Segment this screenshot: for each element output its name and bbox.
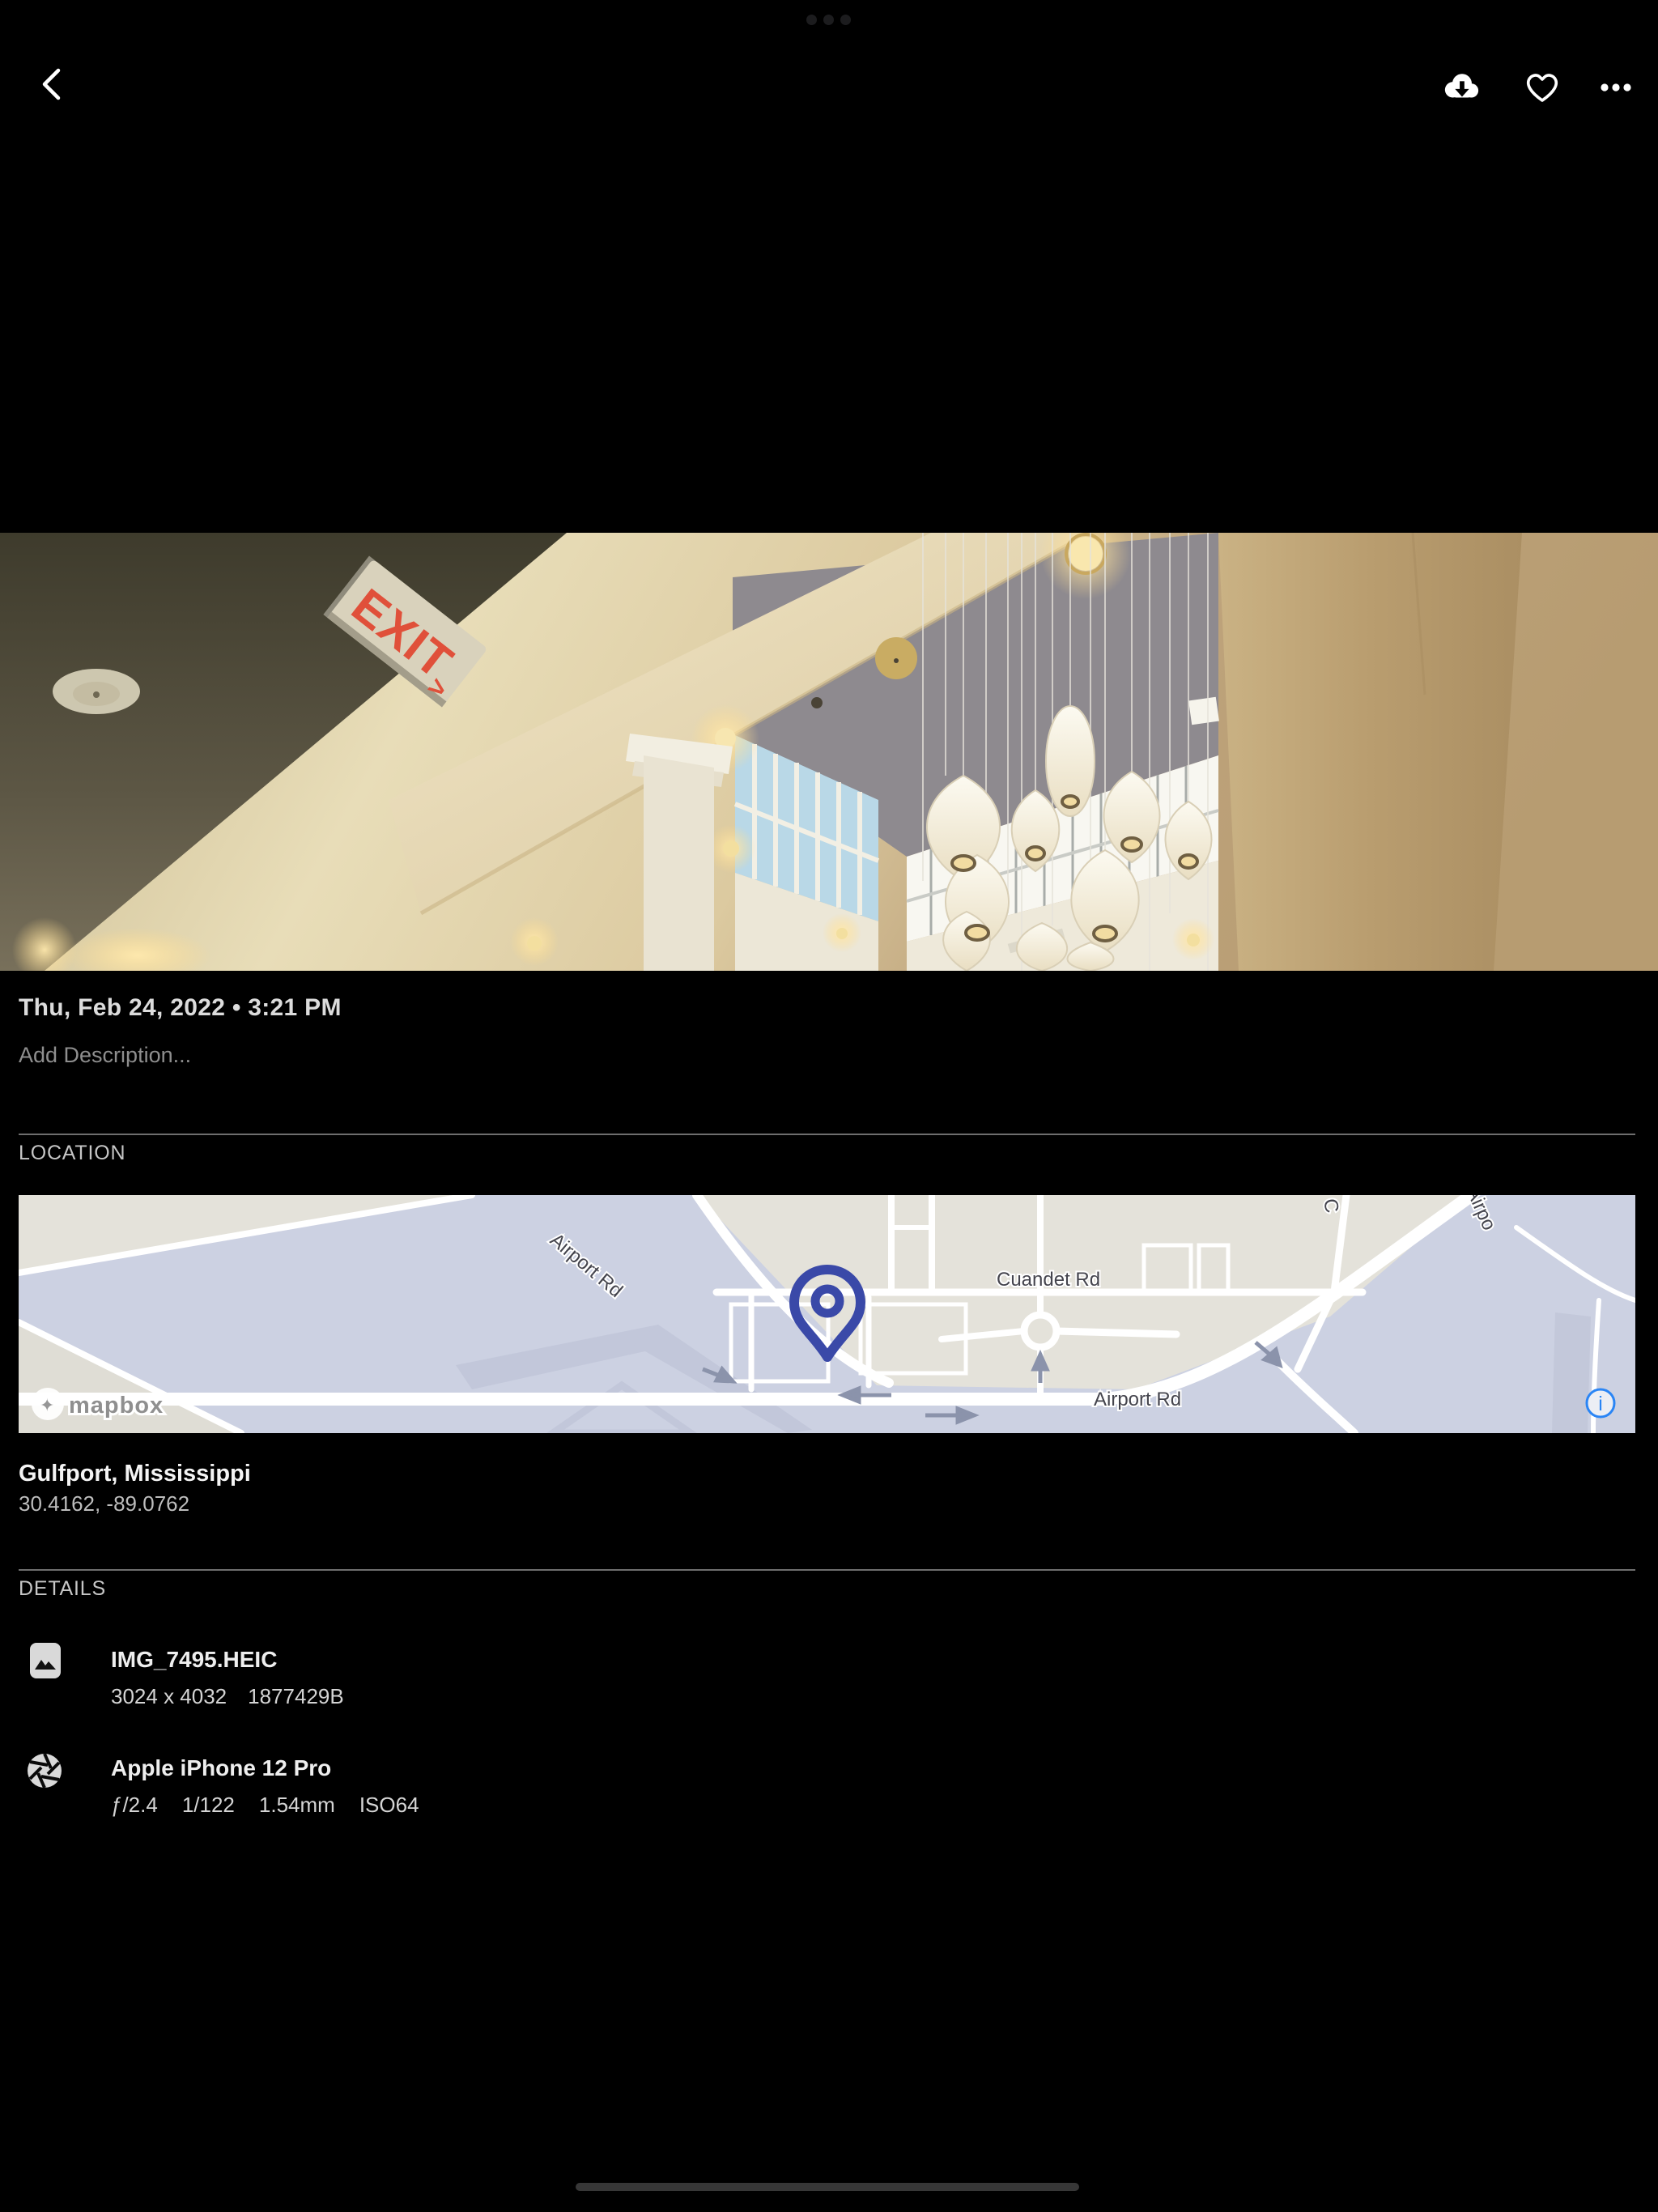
back-button[interactable] [34, 65, 73, 104]
details-section-header: DETAILS [19, 1577, 106, 1601]
location-section-header: LOCATION [19, 1142, 125, 1165]
divider [19, 1569, 1635, 1571]
map-label-airport-rd-lower: Airport Rd [1094, 1389, 1181, 1410]
map-info-button[interactable]: i [1587, 1389, 1614, 1417]
chevron-left-icon [37, 66, 70, 102]
mapbox-logo[interactable]: ✦ mapbox [32, 1388, 164, 1420]
aperture-icon [26, 1752, 63, 1789]
camera-model: Apple iPhone 12 Pro [111, 1755, 331, 1781]
photo-viewer[interactable]: EXIT > [0, 533, 1658, 971]
cloud-download-icon [1442, 71, 1481, 104]
image-thumbnail-icon [29, 1642, 62, 1679]
camera-iso: ISO64 [359, 1793, 419, 1818]
multitask-indicator [806, 15, 851, 25]
download-button[interactable] [1442, 68, 1481, 107]
location-place: Gulfport, Mississippi [19, 1461, 251, 1487]
location-map[interactable]: Airport Rd Cuandet Rd Airport Rd C Airpo… [19, 1195, 1635, 1433]
info-icon: i [1598, 1393, 1603, 1415]
mapbox-logo-icon: ✦ [40, 1395, 54, 1415]
home-indicator[interactable] [576, 2183, 1079, 2191]
file-size: 1877429B [248, 1684, 344, 1709]
file-row [29, 1642, 62, 1683]
location-coordinates: 30.4162, -89.0762 [19, 1491, 189, 1516]
description-input[interactable]: Add Description... [19, 1043, 191, 1068]
ellipsis-icon [1596, 68, 1635, 107]
camera-shutter: 1/122 [182, 1793, 235, 1818]
multitask-dot [823, 15, 834, 25]
photo-image: EXIT > [0, 533, 1658, 971]
more-button[interactable] [1596, 68, 1635, 107]
multitask-dot [840, 15, 851, 25]
camera-focal-length: 1.54mm [259, 1793, 335, 1818]
map-label-cuandet-rd: Cuandet Rd [997, 1269, 1100, 1291]
file-name: IMG_7495.HEIC [111, 1647, 277, 1673]
favorite-button[interactable] [1523, 68, 1562, 107]
photo-datetime: Thu, Feb 24, 2022 • 3:21 PM [19, 994, 342, 1022]
camera-row [26, 1752, 63, 1793]
mapbox-logo-text: mapbox [69, 1393, 164, 1419]
divider [19, 1134, 1635, 1135]
map-canvas: Airport Rd Cuandet Rd Airport Rd C Airpo… [19, 1195, 1635, 1433]
multitask-dot [806, 15, 817, 25]
file-dimensions: 3024 x 4032 [111, 1684, 227, 1709]
heart-icon [1524, 70, 1560, 104]
camera-aperture: ƒ/2.4 [111, 1793, 158, 1818]
